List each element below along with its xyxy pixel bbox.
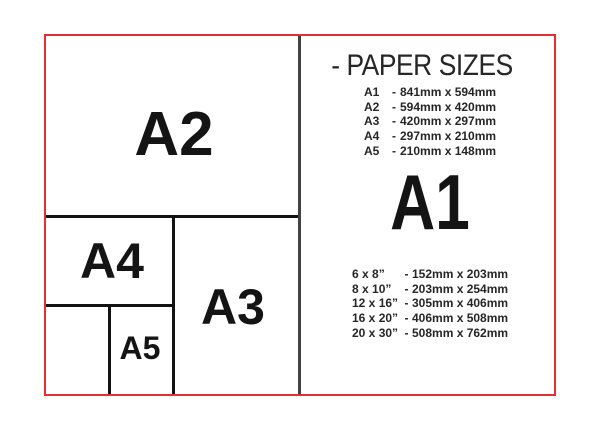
size-label: A2: [364, 100, 388, 115]
a5-rect-label: A5: [120, 332, 161, 364]
a-size-row: A5 - 210mm x 148mm: [364, 144, 496, 159]
size-value: 203mm x 254mm: [412, 282, 508, 297]
size-label: 16 x 20”: [352, 311, 401, 326]
page-title: - PAPER SIZES: [331, 51, 513, 81]
inch-size-row: 20 x 30” - 508mm x 762mm: [352, 326, 508, 341]
inch-size-list: 6 x 8” - 152mm x 203mm 8 x 10” - 203mm x…: [352, 267, 508, 340]
size-label: A1: [364, 85, 388, 100]
size-label: 12 x 16”: [352, 296, 401, 311]
size-value: 210mm x 148mm: [400, 144, 496, 159]
dash-separator: -: [401, 326, 412, 341]
dash-separator: -: [401, 267, 412, 282]
size-label: 8 x 10”: [352, 282, 401, 297]
a-size-list: A1 - 841mm x 594mm A2 - 594mm x 420mm A3…: [364, 85, 496, 158]
size-label: 20 x 30”: [352, 326, 401, 341]
size-value: 420mm x 297mm: [400, 114, 496, 129]
size-label: A4: [364, 129, 388, 144]
a2-rect-label: A2: [134, 104, 213, 166]
a4-rect-label: A4: [80, 236, 144, 286]
inch-size-row: 16 x 20” - 406mm x 508mm: [352, 311, 508, 326]
size-value: 508mm x 762mm: [412, 326, 508, 341]
size-value: 305mm x 406mm: [412, 296, 508, 311]
paper-sizes-infographic: A2 A4 A3 A5 - PAPER SIZES A1 - 841mm x 5…: [0, 0, 600, 424]
dash-separator: -: [388, 144, 400, 159]
dash-separator: -: [401, 311, 412, 326]
a-size-row: A3 - 420mm x 297mm: [364, 114, 496, 129]
a3-rect-label: A3: [201, 282, 265, 332]
inch-size-row: 6 x 8” - 152mm x 203mm: [352, 267, 508, 282]
size-label: A5: [364, 144, 388, 159]
featured-size-label: A1: [390, 163, 470, 241]
dash-separator: -: [388, 129, 400, 144]
size-value: 152mm x 203mm: [412, 267, 508, 282]
size-value: 594mm x 420mm: [400, 100, 496, 115]
size-value: 406mm x 508mm: [412, 311, 508, 326]
a-size-row: A4 - 297mm x 210mm: [364, 129, 496, 144]
dash-separator: -: [388, 100, 400, 115]
inch-size-row: 8 x 10” - 203mm x 254mm: [352, 282, 508, 297]
inch-size-row: 12 x 16” - 305mm x 406mm: [352, 296, 508, 311]
size-value: 841mm x 594mm: [400, 85, 496, 100]
a-size-row: A2 - 594mm x 420mm: [364, 100, 496, 115]
center-divider-line: [298, 36, 301, 394]
dash-separator: -: [401, 282, 412, 297]
a-size-row: A1 - 841mm x 594mm: [364, 85, 496, 100]
size-value: 297mm x 210mm: [400, 129, 496, 144]
size-label: 6 x 8”: [352, 267, 401, 282]
size-label: A3: [364, 114, 388, 129]
a5-left-line: [108, 304, 111, 394]
dash-separator: -: [388, 114, 400, 129]
dash-separator: -: [388, 85, 400, 100]
dash-separator: -: [401, 296, 412, 311]
